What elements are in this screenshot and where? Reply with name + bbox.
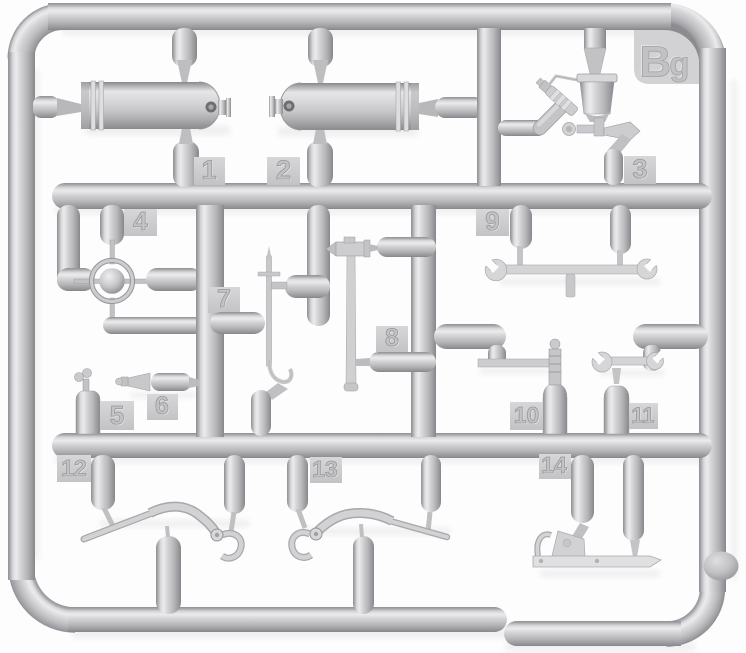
- svg-text:12: 12: [61, 455, 87, 481]
- svg-text:9: 9: [485, 206, 499, 236]
- svg-text:B: B: [640, 38, 672, 87]
- svg-text:10: 10: [514, 402, 540, 428]
- svg-text:1: 1: [201, 155, 216, 185]
- svg-text:14: 14: [541, 452, 567, 478]
- svg-text:3: 3: [632, 154, 647, 184]
- svg-text:13: 13: [312, 456, 338, 482]
- svg-text:11: 11: [631, 403, 654, 428]
- svg-text:7: 7: [217, 285, 231, 313]
- svg-text:8: 8: [385, 324, 399, 352]
- svg-text:5: 5: [110, 400, 124, 430]
- svg-text:g: g: [669, 45, 689, 82]
- svg-text:4: 4: [133, 206, 148, 236]
- svg-text:2: 2: [276, 155, 291, 185]
- svg-text:6: 6: [155, 392, 169, 420]
